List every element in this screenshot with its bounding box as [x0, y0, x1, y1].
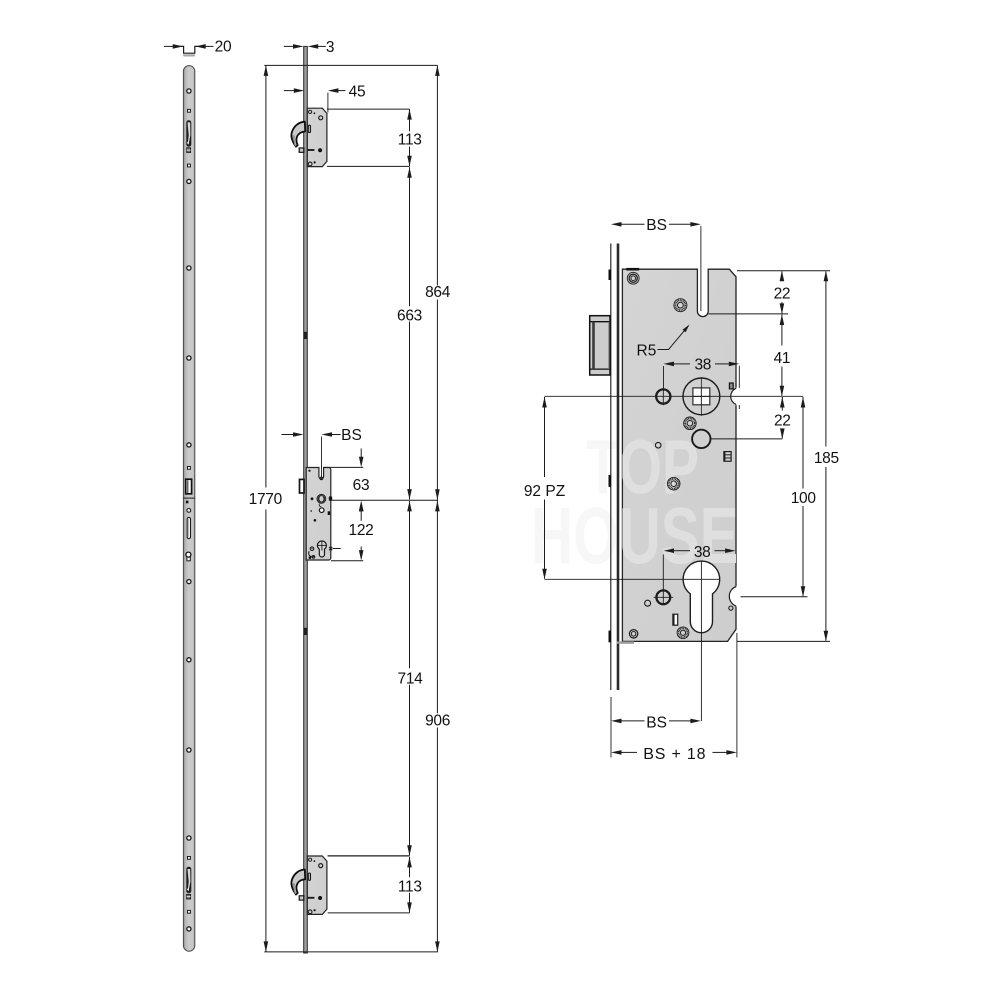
svg-text:41: 41 — [774, 350, 791, 367]
svg-text:100: 100 — [791, 490, 817, 507]
svg-text:45: 45 — [349, 83, 366, 100]
svg-text:63: 63 — [353, 477, 370, 494]
svg-text:BS: BS — [646, 217, 667, 234]
svg-text:714: 714 — [398, 671, 424, 688]
svg-text:20: 20 — [215, 39, 232, 56]
svg-text:92 PZ: 92 PZ — [524, 483, 565, 500]
svg-text:113: 113 — [398, 878, 422, 895]
svg-text:R5: R5 — [637, 342, 657, 359]
svg-text:663: 663 — [397, 307, 422, 324]
svg-text:BS + 18: BS + 18 — [643, 746, 706, 763]
svg-text:864: 864 — [425, 284, 451, 301]
svg-text:3: 3 — [326, 39, 334, 56]
svg-text:BS: BS — [646, 714, 667, 731]
svg-text:185: 185 — [814, 450, 839, 467]
svg-text:906: 906 — [425, 713, 450, 730]
svg-text:22: 22 — [774, 413, 791, 430]
svg-text:38: 38 — [694, 357, 711, 374]
svg-text:122: 122 — [349, 522, 374, 539]
svg-text:BS: BS — [341, 427, 362, 444]
svg-text:38: 38 — [694, 544, 711, 561]
svg-text:1770: 1770 — [249, 491, 283, 508]
svg-text:113: 113 — [398, 131, 422, 148]
svg-text:22: 22 — [774, 286, 791, 303]
